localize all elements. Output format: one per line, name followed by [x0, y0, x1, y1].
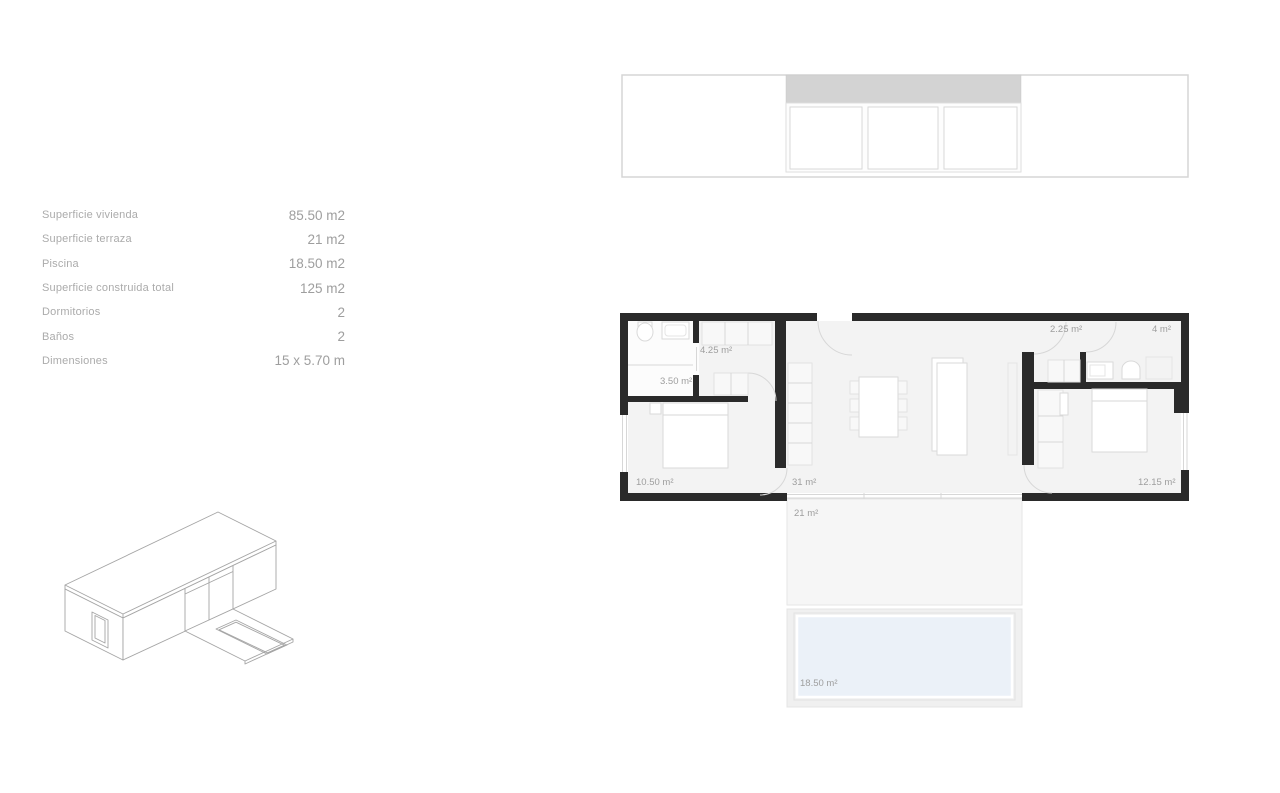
room-label-utility: 3.50 m² — [660, 376, 692, 387]
shelf-icon — [1060, 393, 1068, 415]
elevation-glass-panel — [790, 107, 862, 169]
room-label-hall: 2.25 m² — [1050, 324, 1082, 335]
nightstand-icon — [650, 403, 661, 414]
drawings-canvas — [0, 0, 1280, 793]
toilet-icon — [1122, 361, 1140, 379]
elevation-view — [622, 75, 1188, 177]
room-label-bath-small: 4.25 m² — [700, 345, 732, 356]
toilet-icon — [637, 323, 653, 341]
wardrobe-icon — [1038, 390, 1063, 468]
kitchen-cabinets — [788, 363, 812, 465]
room-label-pool: 18.50 m² — [800, 678, 838, 689]
room-label-terrace: 21 m² — [794, 508, 818, 519]
hall-closet — [1048, 360, 1080, 382]
bed-icon — [663, 403, 728, 468]
elevation-glass-panel — [944, 107, 1017, 169]
elevation-roof-band — [786, 75, 1021, 103]
kitchen-island-icon — [937, 363, 967, 455]
bed-icon — [1092, 389, 1147, 452]
isometric-view — [65, 512, 293, 664]
room-label-bath-right: 4 m² — [1152, 324, 1171, 335]
terrace-area — [787, 499, 1022, 605]
elevation-glass-panel — [868, 107, 938, 169]
room-label-living: 31 m² — [792, 477, 816, 488]
dining-table-icon — [859, 377, 898, 437]
property-sheet: Superficie vivienda 85.50 m2 Superficie … — [0, 0, 1280, 793]
room-label-bedroom-right: 12.15 m² — [1138, 477, 1176, 488]
room-label-bedroom-left: 10.50 m² — [636, 477, 674, 488]
floor-plan — [620, 313, 1189, 707]
bathroom-left-fixtures — [637, 322, 689, 341]
